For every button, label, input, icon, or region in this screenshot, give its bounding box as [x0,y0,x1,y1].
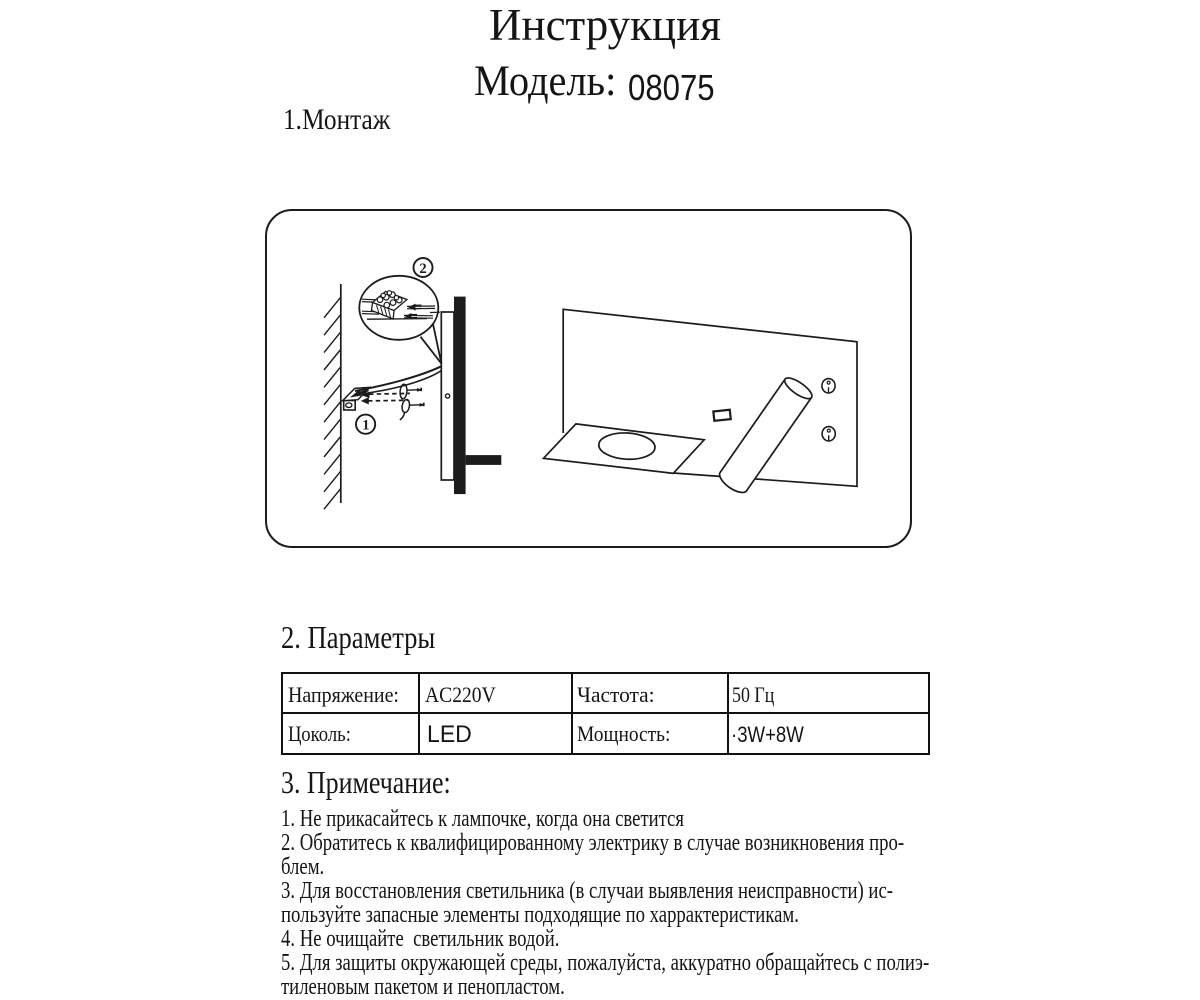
svg-text:2: 2 [419,261,426,277]
svg-text:1: 1 [362,417,369,433]
